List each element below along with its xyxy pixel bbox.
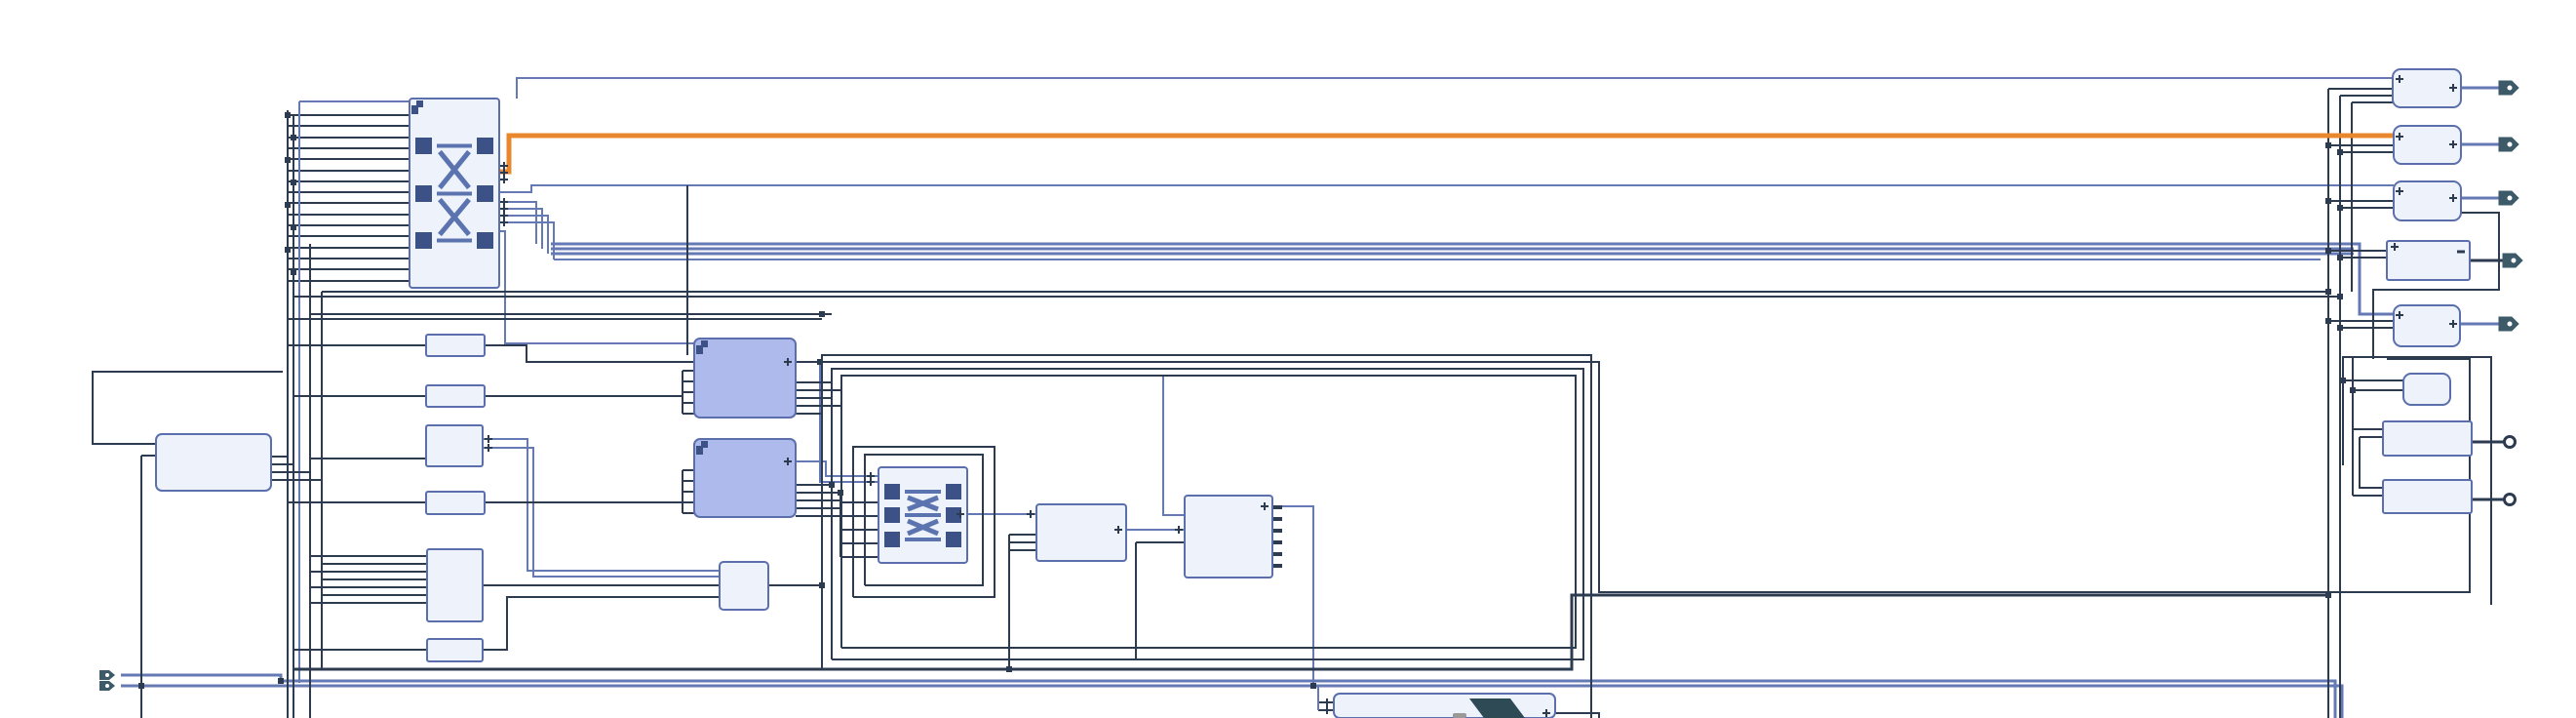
- net-junction: [138, 683, 144, 689]
- net[interactable]: [121, 686, 2342, 718]
- block-cell-mid-small[interactable]: [720, 562, 768, 610]
- net-junction: [285, 157, 291, 163]
- schematic-canvas[interactable]: [0, 0, 2576, 718]
- block-rtl-block-1[interactable]: [694, 339, 796, 418]
- net-junction: [285, 247, 291, 253]
- mux-square-icon: [477, 232, 493, 249]
- net-junction: [2325, 142, 2331, 148]
- net[interactable]: [517, 78, 2393, 99]
- net[interactable]: [1555, 713, 1599, 718]
- block-cell-square-1[interactable]: [426, 425, 483, 466]
- block-buf-small-3[interactable]: [426, 492, 485, 514]
- net-junction: [291, 224, 296, 230]
- net-junction: [2340, 378, 2346, 383]
- net-junction: [838, 490, 843, 496]
- net-junction: [2337, 205, 2343, 211]
- mux-square-icon: [477, 185, 493, 202]
- net-junction: [291, 179, 296, 185]
- net[interactable]: [499, 136, 2394, 172]
- block-rtl-block-2[interactable]: [694, 439, 796, 517]
- output-port-7-icon[interactable]: [2505, 495, 2516, 505]
- net-junction: [2325, 289, 2331, 295]
- block-cell-tall-1[interactable]: [427, 549, 483, 621]
- block-cell-r8[interactable]: [2383, 480, 2472, 513]
- net-junction: [819, 311, 825, 317]
- net-junction: [2325, 592, 2331, 598]
- net[interactable]: [499, 222, 554, 259]
- mux-square-icon: [415, 138, 432, 154]
- net-junction: [2325, 198, 2331, 204]
- output-port-4-hole: [2512, 259, 2517, 263]
- net-junction: [2350, 387, 2356, 393]
- net-junction: [285, 112, 291, 118]
- net[interactable]: [796, 461, 878, 476]
- mux-square-icon: [415, 185, 432, 202]
- net-junction: [291, 269, 296, 275]
- net[interactable]: [499, 216, 548, 254]
- net-junction: [285, 202, 291, 208]
- net[interactable]: [483, 597, 720, 650]
- block-cell-left-1[interactable]: [156, 434, 271, 491]
- block-buf-small-1[interactable]: [426, 335, 485, 356]
- block-buf-small-4[interactable]: [427, 639, 483, 661]
- net-junction: [1006, 666, 1012, 672]
- net-junction: [2337, 255, 2343, 260]
- net-junction: [291, 135, 296, 140]
- block-cell-b[interactable]: [1185, 496, 1272, 578]
- net[interactable]: [1163, 376, 1185, 515]
- mux-square-icon: [946, 484, 961, 499]
- net-junction: [278, 678, 284, 684]
- net-junction: [2325, 248, 2331, 254]
- output-port-6-icon[interactable]: [2505, 437, 2516, 448]
- net[interactable]: [483, 439, 720, 571]
- output-port-5-hole: [2508, 322, 2513, 327]
- mux-square-icon: [415, 232, 432, 249]
- block-cell-a[interactable]: [1036, 504, 1126, 561]
- mux-square-icon: [884, 484, 900, 499]
- net-junction: [829, 482, 835, 488]
- net-junction: [819, 582, 825, 588]
- net-junction: [817, 359, 823, 365]
- block-buf-small-2[interactable]: [426, 385, 485, 407]
- block-obuf-3[interactable]: [2394, 181, 2461, 220]
- output-port-2-hole: [2508, 142, 2513, 147]
- net[interactable]: [93, 372, 283, 444]
- schematic-svg: [0, 0, 2576, 718]
- net[interactable]: [121, 675, 2335, 718]
- mux-square-icon: [477, 138, 493, 154]
- block-obuf-5[interactable]: [2394, 305, 2460, 346]
- output-port-1-hole: [2508, 86, 2513, 91]
- net[interactable]: [499, 185, 2394, 192]
- logo-accent-icon: [1453, 713, 1466, 718]
- net-junction: [2325, 318, 2331, 324]
- mux-square-icon: [884, 507, 900, 523]
- net[interactable]: [2360, 437, 2383, 488]
- mux-square-icon: [946, 532, 961, 547]
- mux-square-icon: [884, 532, 900, 547]
- net-junction: [2337, 149, 2343, 155]
- net-junction: [1310, 683, 1316, 689]
- net-junction: [2337, 294, 2343, 299]
- net-junction: [2337, 325, 2343, 331]
- input-port-1-hole: [105, 673, 109, 677]
- output-port-3-hole: [2508, 196, 2513, 201]
- net[interactable]: [796, 362, 878, 482]
- block-cell-r4[interactable]: [2387, 241, 2470, 280]
- block-cell-r7[interactable]: [2383, 421, 2472, 456]
- input-port-2-hole: [105, 684, 109, 688]
- net[interactable]: [293, 595, 2328, 669]
- block-buf-r6[interactable]: [2403, 374, 2450, 405]
